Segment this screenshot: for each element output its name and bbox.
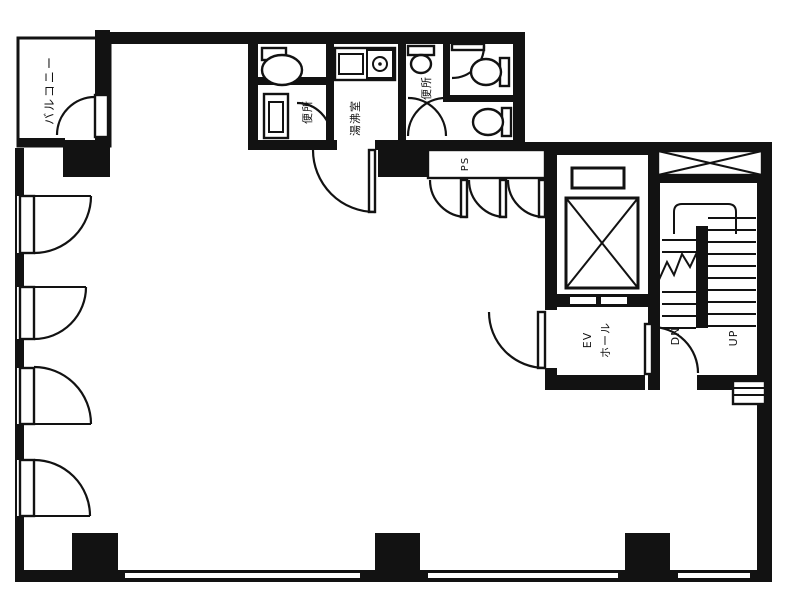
door-leaf <box>20 368 34 424</box>
closet-door-leaf <box>500 180 506 217</box>
elevator-counterweight <box>572 168 624 188</box>
stair-door-leaf <box>645 324 652 374</box>
column <box>375 533 420 577</box>
core-block: EV ホール <box>489 142 772 404</box>
toilet-room-east: 便所 <box>408 44 511 136</box>
balcony-label: バルコニー <box>43 55 57 125</box>
bottom-window-slit <box>678 573 750 578</box>
kitchenette-label: 湯沸室 <box>348 100 362 136</box>
door-arc <box>34 367 91 424</box>
toilet-bowl <box>473 109 503 135</box>
duct-box <box>733 381 765 404</box>
door-leaf <box>20 196 34 253</box>
columns <box>63 140 670 577</box>
service-block: 便所 湯沸室 便所 <box>248 44 545 217</box>
balcony-door-leaf <box>95 95 108 137</box>
ev-hall-label-2: ホール <box>599 322 612 358</box>
kitchenette-room: 湯沸室 <box>313 48 395 212</box>
balcony-room: バルコニー <box>18 30 110 148</box>
column <box>625 533 670 575</box>
ev-hall-door-arc <box>489 312 545 368</box>
closet-door-leaf <box>539 180 545 217</box>
toilet-west-label: 便所 <box>301 100 314 124</box>
kitchenette-door-leaf <box>369 150 375 212</box>
ev-hall: EV ホール <box>489 312 612 368</box>
door-arc <box>34 196 91 253</box>
pipe-shaft-band: PS <box>428 150 545 217</box>
door-arc <box>34 460 90 516</box>
toilet-room-west: 便所 <box>262 48 331 138</box>
ev-hall-label-1: EV <box>581 332 594 348</box>
elevator-shaft <box>557 168 648 307</box>
stair-treads-up <box>708 218 756 326</box>
urinal <box>411 55 431 73</box>
elevator-door-mark <box>570 297 596 304</box>
floor-plan: バルコニー 便所 湯沸室 <box>0 0 787 611</box>
door-arc <box>34 287 86 339</box>
stairwell: DN UP <box>645 204 756 374</box>
floor-plan-drawing: バルコニー 便所 湯沸室 <box>0 0 787 611</box>
ev-hall-door-leaf <box>538 312 545 368</box>
closet-door-leaf <box>461 180 467 217</box>
balcony-door-arc <box>57 97 95 135</box>
stair-divider-wall <box>696 226 708 328</box>
elevator-door-mark <box>601 297 627 304</box>
vent-shaft-box <box>648 151 772 183</box>
door-leaf <box>20 460 34 516</box>
toilet-bowl <box>471 59 501 85</box>
stair-break-line <box>658 250 698 282</box>
pipe-shaft-label: PS <box>460 157 471 171</box>
toilet-bowl <box>262 55 302 85</box>
toilet-east-label: 便所 <box>420 76 433 100</box>
bottom-window-slit <box>125 573 360 578</box>
main-open-area <box>100 230 480 530</box>
left-wall-openings <box>20 196 91 516</box>
bottom-window-slit <box>428 573 618 578</box>
column <box>72 533 118 575</box>
stall-door-leaf <box>452 44 484 50</box>
urinal-top <box>408 46 434 55</box>
kitchenette-door-arc <box>313 150 375 212</box>
stove-knob <box>378 62 382 66</box>
stair-up-label: UP <box>727 330 740 347</box>
door-leaf <box>20 287 34 339</box>
stair-treads-down <box>662 240 696 328</box>
